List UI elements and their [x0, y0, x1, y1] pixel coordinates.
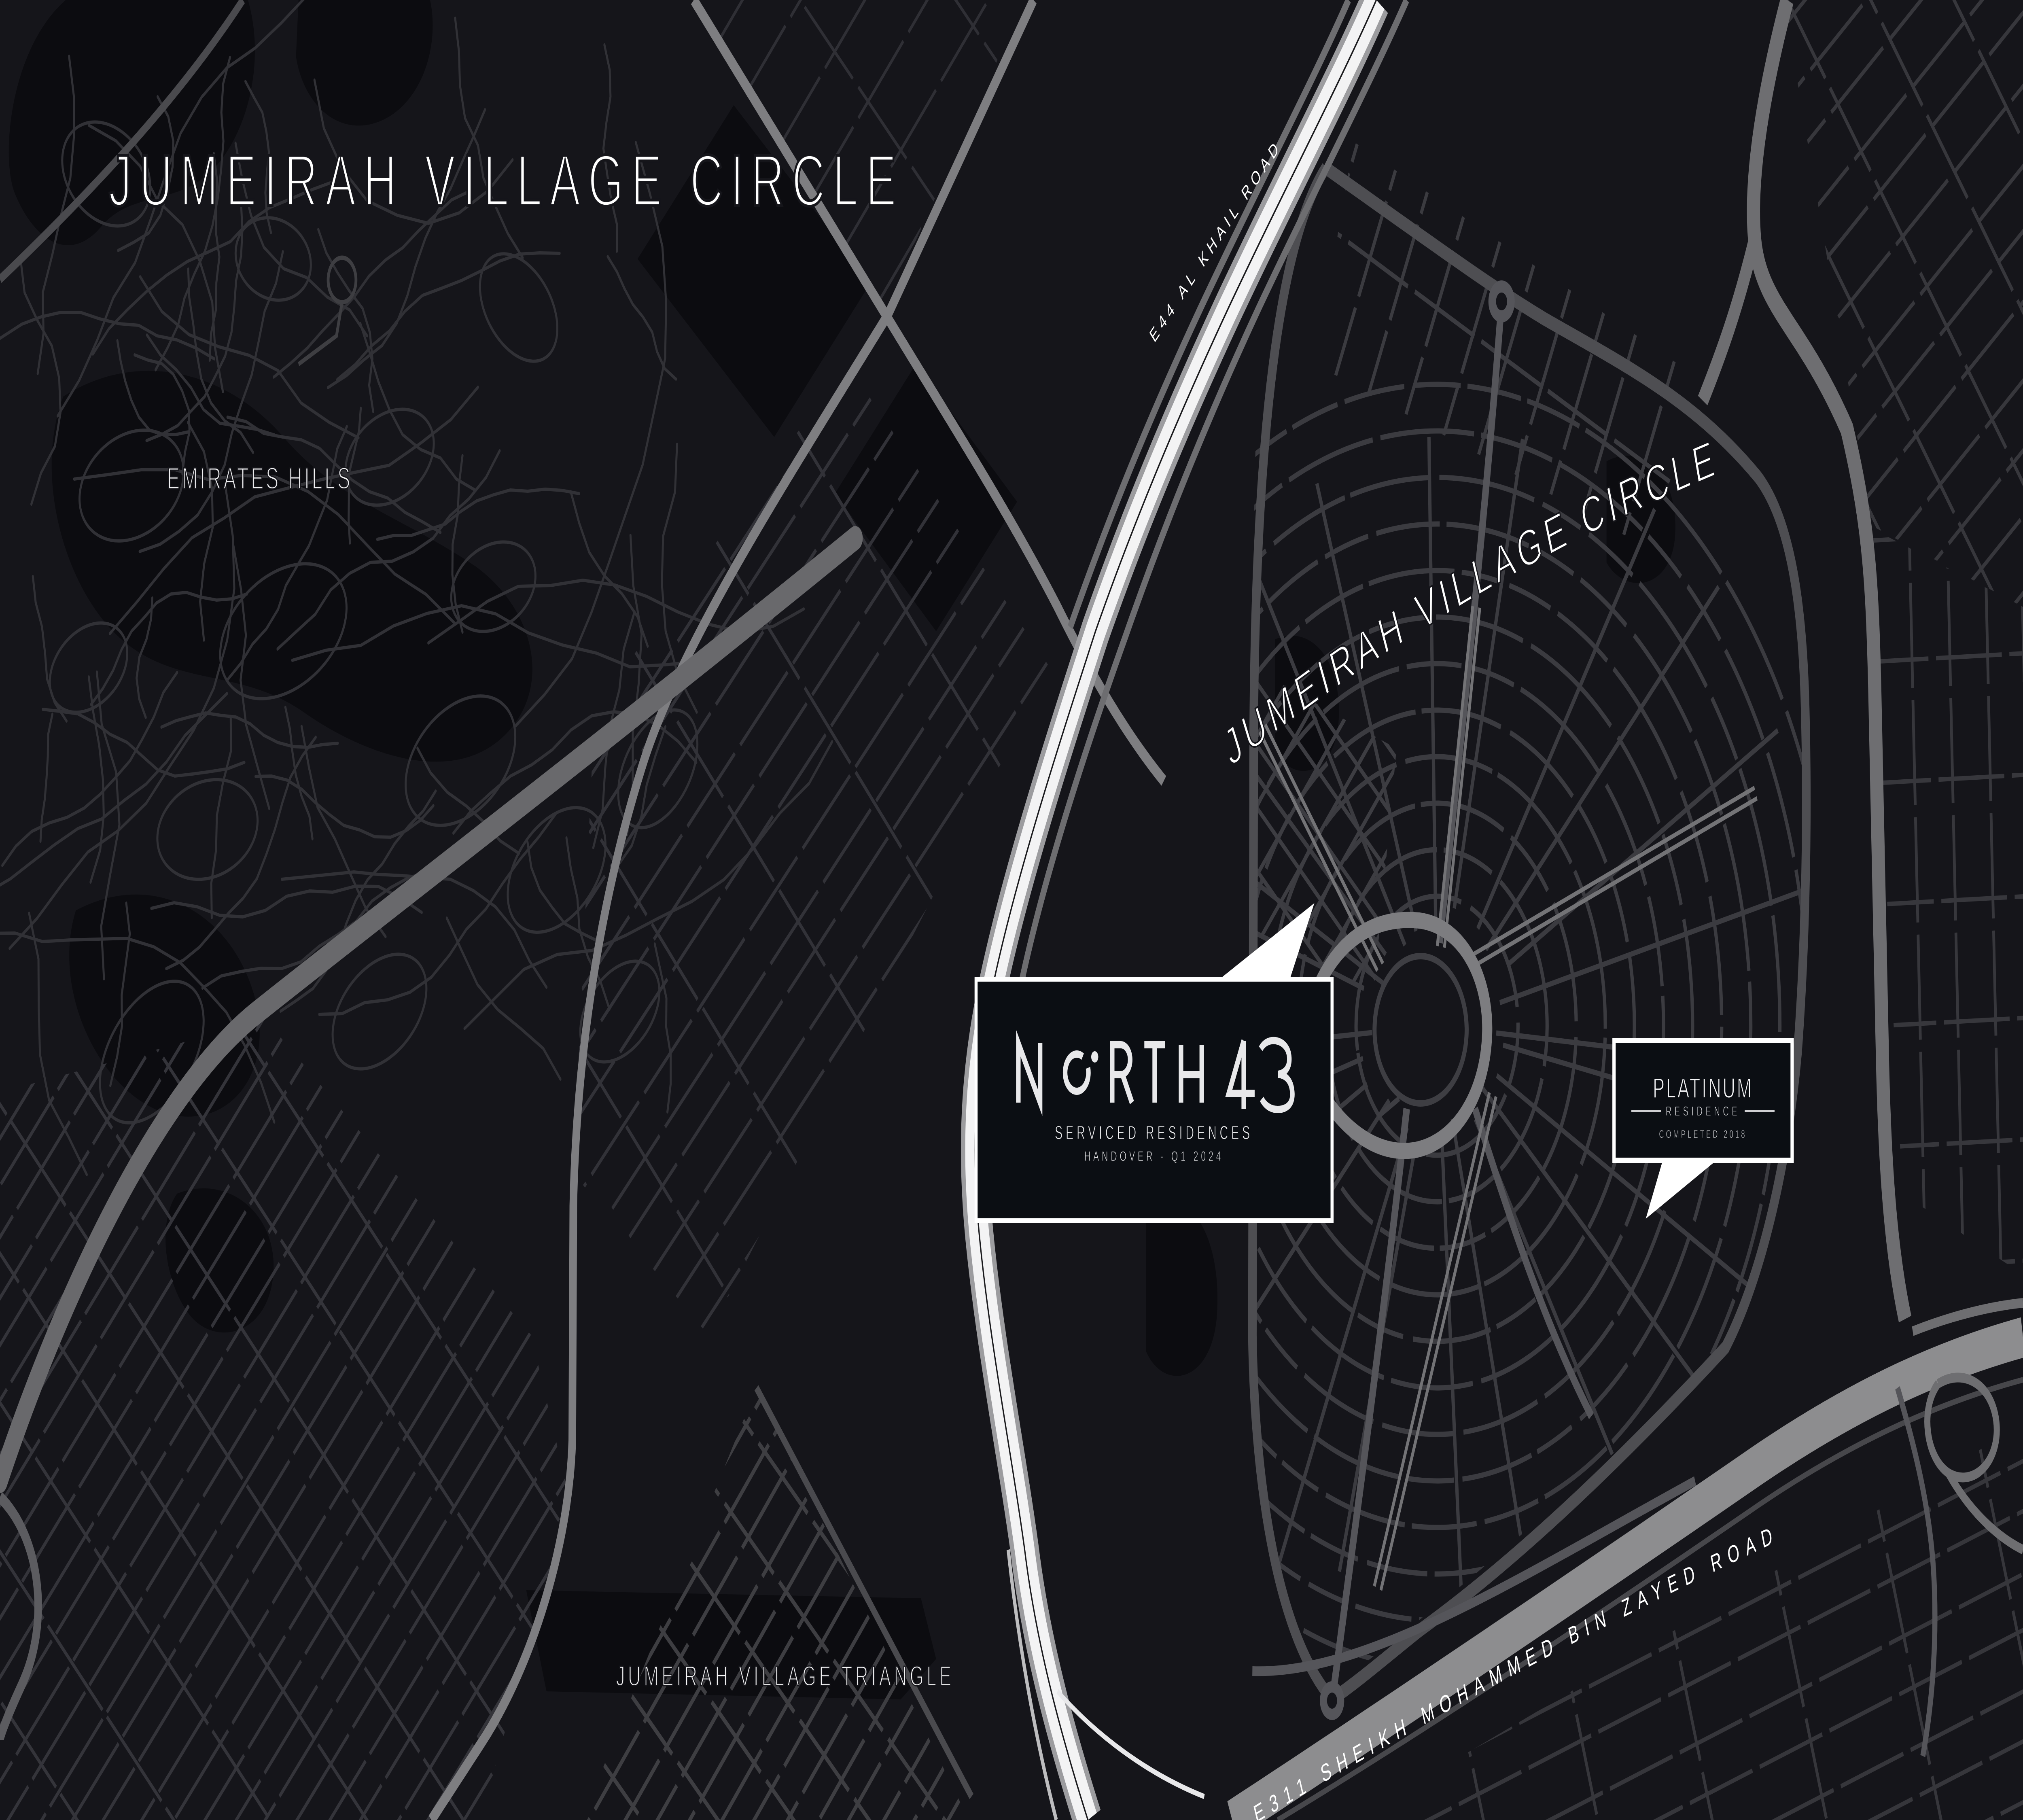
- svg-text:E44 AL KHAIL ROAD: E44 AL KHAIL ROAD: [1147, 134, 1284, 346]
- svg-text:JUMEIRAH VILLAGE CIRCLE: JUMEIRAH VILLAGE CIRCLE: [109, 140, 904, 221]
- svg-text:SERVICED RESIDENCES: SERVICED RESIDENCES: [1055, 1122, 1253, 1143]
- svg-text:RESIDENCE: RESIDENCE: [1666, 1104, 1740, 1118]
- svg-text:JUMEIRAH VILLAGE CIRCLE: JUMEIRAH VILLAGE CIRCLE: [1218, 429, 1722, 776]
- svg-text:JUMEIRAH VILLAGE TRIANGLE: JUMEIRAH VILLAGE TRIANGLE: [616, 1661, 954, 1692]
- svg-text:PLATINUM: PLATINUM: [1653, 1073, 1753, 1104]
- svg-text:HANDOVER - Q1 2024: HANDOVER - Q1 2024: [1084, 1149, 1224, 1164]
- svg-text:COMPLETED 2018: COMPLETED 2018: [1659, 1128, 1747, 1140]
- svg-text:E311 SHEIKH MOHAMMED BIN ZAYED: E311 SHEIKH MOHAMMED BIN ZAYED ROAD: [1251, 1519, 1781, 1820]
- svg-text:EMIRATES HILLS: EMIRATES HILLS: [167, 462, 352, 496]
